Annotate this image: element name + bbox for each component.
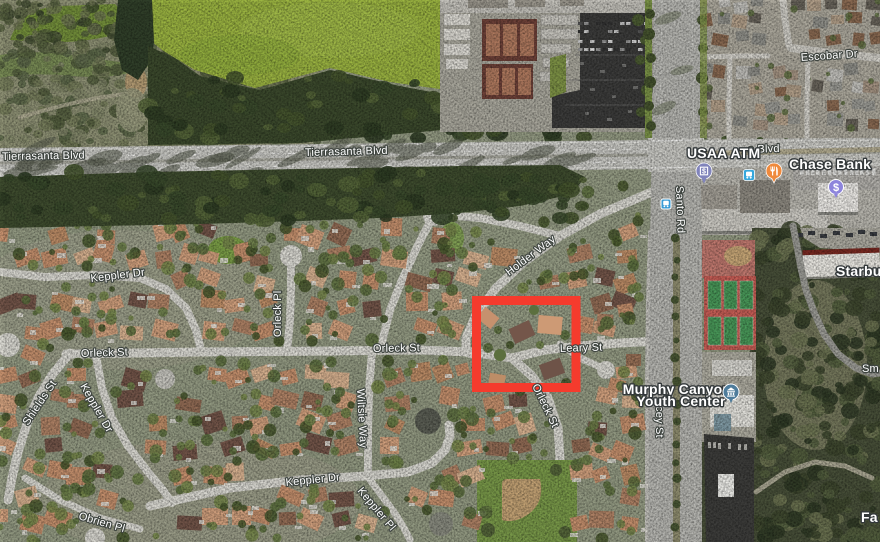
svg-text:Youth Center: Youth Center — [636, 393, 726, 409]
svg-text:Fa: Fa — [861, 509, 878, 525]
svg-text:Santo Rd: Santo Rd — [673, 186, 687, 234]
svg-text:Orleck Pl: Orleck Pl — [272, 291, 284, 337]
svg-text:$: $ — [702, 169, 706, 176]
svg-text:cey St: cey St — [653, 406, 665, 438]
svg-text:Leary St: Leary St — [560, 342, 603, 355]
svg-text:Sm: Sm — [862, 363, 879, 375]
svg-text:Orleck St: Orleck St — [373, 342, 420, 355]
svg-text:Starbu: Starbu — [836, 263, 880, 279]
svg-text:USAA ATM: USAA ATM — [687, 145, 760, 161]
svg-text:Chase Bank: Chase Bank — [789, 156, 871, 172]
svg-text:$: $ — [833, 182, 839, 194]
svg-text:Orleck St: Orleck St — [81, 346, 128, 360]
svg-text:Tierrasanta Blvd: Tierrasanta Blvd — [2, 150, 85, 163]
svg-text:Tierrasanta Blvd: Tierrasanta Blvd — [305, 145, 388, 159]
